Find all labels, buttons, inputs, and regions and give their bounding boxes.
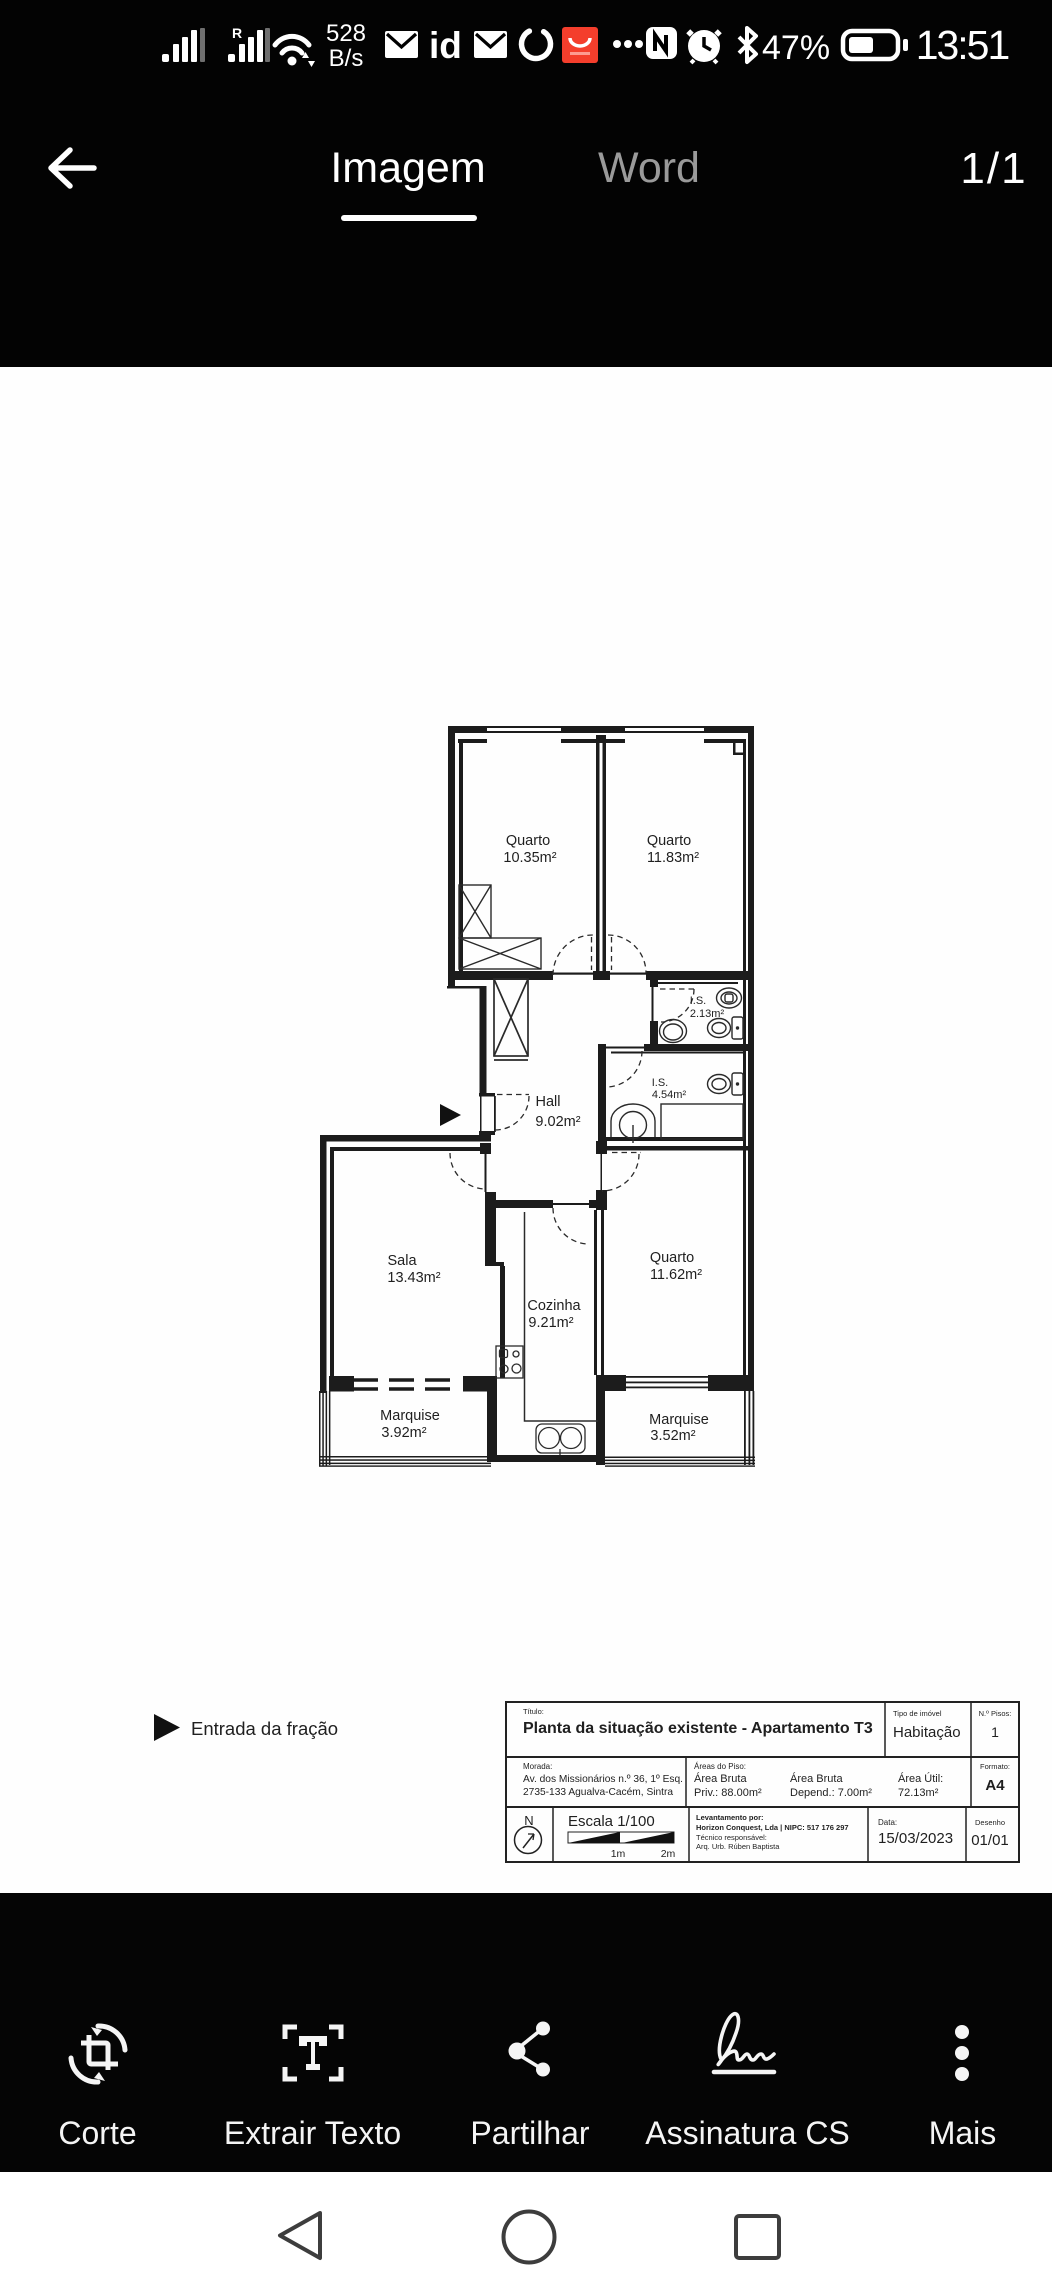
svg-text:Word: Word bbox=[598, 144, 700, 192]
svg-text:Área Útil:: Área Útil: bbox=[898, 1772, 943, 1785]
svg-text:Tipo de imóvel: Tipo de imóvel bbox=[893, 1709, 942, 1718]
svg-text:A4: A4 bbox=[985, 1777, 1005, 1794]
svg-text:Cozinha: Cozinha bbox=[527, 1298, 581, 1314]
svg-text:Área Bruta: Área Bruta bbox=[790, 1772, 843, 1785]
svg-text:2.13m²: 2.13m² bbox=[690, 1008, 725, 1020]
svg-text:11.83m²: 11.83m² bbox=[647, 850, 699, 866]
svg-text:1/1: 1/1 bbox=[960, 144, 1027, 193]
svg-text:Área Bruta: Área Bruta bbox=[694, 1772, 747, 1785]
svg-text:B/s: B/s bbox=[329, 45, 364, 72]
svg-text:Quarto: Quarto bbox=[650, 1250, 694, 1266]
svg-text:Levantamento por:: Levantamento por: bbox=[696, 1813, 764, 1822]
svg-text:Desenho: Desenho bbox=[975, 1818, 1005, 1827]
svg-text:9.21m²: 9.21m² bbox=[528, 1315, 573, 1331]
svg-text:Av. dos Missionários n.º 36, 1: Av. dos Missionários n.º 36, 1º Esq. bbox=[523, 1774, 683, 1785]
svg-text:13.43m²: 13.43m² bbox=[387, 1270, 440, 1286]
svg-text:2735-133 Agualva-Cacém, Sintra: 2735-133 Agualva-Cacém, Sintra bbox=[523, 1787, 673, 1798]
svg-text:72.13m²: 72.13m² bbox=[898, 1787, 939, 1799]
svg-text:1m: 1m bbox=[611, 1848, 626, 1860]
svg-text:1: 1 bbox=[991, 1724, 999, 1740]
svg-text:N: N bbox=[524, 1813, 533, 1828]
svg-text:01/01: 01/01 bbox=[971, 1832, 1009, 1849]
svg-text:I.S.: I.S. bbox=[652, 1077, 669, 1089]
svg-text:47%: 47% bbox=[762, 29, 830, 67]
svg-text:Escala 1/100: Escala 1/100 bbox=[568, 1813, 655, 1830]
svg-text:2m: 2m bbox=[661, 1848, 676, 1860]
svg-text:Entrada da fração: Entrada da fração bbox=[191, 1718, 338, 1739]
svg-text:11.62m²: 11.62m² bbox=[650, 1267, 702, 1283]
svg-text:N.º Pisos:: N.º Pisos: bbox=[979, 1709, 1012, 1718]
svg-text:9.02m²: 9.02m² bbox=[535, 1114, 580, 1130]
svg-text:15/03/2023: 15/03/2023 bbox=[878, 1830, 953, 1847]
svg-text:Planta da situação existente -: Planta da situação existente - Apartamen… bbox=[523, 1720, 873, 1737]
svg-text:Sala: Sala bbox=[387, 1253, 417, 1269]
svg-text:I.S.: I.S. bbox=[690, 995, 707, 1007]
svg-text:Marquise: Marquise bbox=[380, 1408, 440, 1424]
svg-text:528: 528 bbox=[326, 20, 366, 47]
svg-text:Hall: Hall bbox=[536, 1094, 561, 1110]
svg-text:3.92m²: 3.92m² bbox=[381, 1425, 426, 1441]
svg-text:Marquise: Marquise bbox=[649, 1412, 709, 1428]
svg-text:Morada:: Morada: bbox=[523, 1762, 552, 1771]
svg-text:Horizon Conquest, Lda | NIPC:: Horizon Conquest, Lda | NIPC: 517 176 29… bbox=[696, 1823, 849, 1832]
svg-text:3.52m²: 3.52m² bbox=[650, 1428, 695, 1444]
svg-text:Quarto: Quarto bbox=[506, 833, 550, 849]
svg-text:Priv.: 88.00m²: Priv.: 88.00m² bbox=[694, 1787, 762, 1799]
svg-text:Depend.: 7.00m²: Depend.: 7.00m² bbox=[790, 1787, 872, 1799]
svg-text:Data:: Data: bbox=[878, 1818, 897, 1827]
svg-text:13:51: 13:51 bbox=[916, 22, 1009, 68]
svg-text:Título:: Título: bbox=[523, 1707, 544, 1716]
svg-text:4.54m²: 4.54m² bbox=[652, 1089, 687, 1101]
svg-text:Quarto: Quarto bbox=[647, 833, 691, 849]
svg-text:R: R bbox=[232, 25, 242, 41]
svg-text:Formato:: Formato: bbox=[980, 1762, 1010, 1771]
svg-text:Áreas do Piso:: Áreas do Piso: bbox=[694, 1762, 746, 1771]
svg-text:Técnico responsável:: Técnico responsável: bbox=[696, 1833, 767, 1842]
svg-text:Habitação: Habitação bbox=[893, 1724, 961, 1741]
svg-text:Imagem: Imagem bbox=[330, 144, 485, 192]
svg-text:10.35m²: 10.35m² bbox=[503, 850, 556, 866]
svg-text:id: id bbox=[429, 25, 462, 66]
svg-text:Arq. Urb. Rúben Baptista: Arq. Urb. Rúben Baptista bbox=[696, 1842, 780, 1851]
